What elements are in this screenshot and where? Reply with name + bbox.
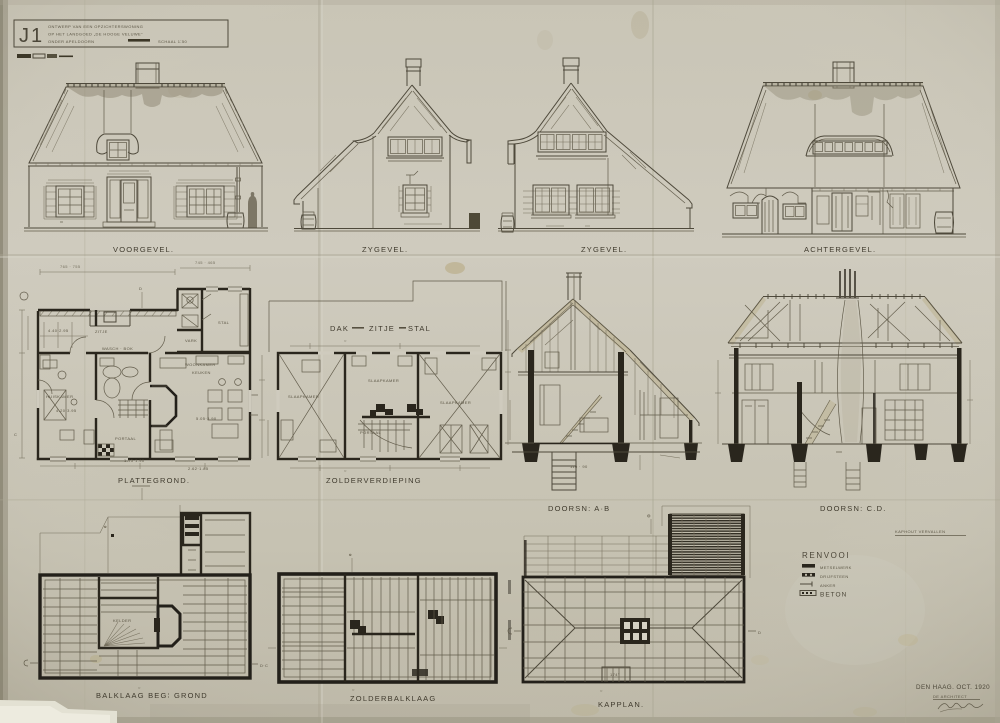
svg-text:○: ○ bbox=[138, 685, 141, 690]
svg-text:DRIJFSTEEN: DRIJFSTEEN bbox=[820, 574, 849, 579]
svg-text:DAK: DAK bbox=[330, 324, 349, 333]
svg-text:DE ARCHITECT: DE ARCHITECT bbox=[933, 694, 967, 699]
svg-text:WOONKAMER: WOONKAMER bbox=[185, 362, 216, 367]
svg-text:○: ○ bbox=[344, 338, 347, 343]
svg-text:2.62·1.85: 2.62·1.85 bbox=[188, 466, 209, 471]
svg-text:4.20·3.95: 4.20·3.95 bbox=[56, 408, 77, 413]
svg-text:ONDER APELDOORN: ONDER APELDOORN bbox=[48, 39, 94, 44]
svg-text:SLAAPKAMER: SLAAPKAMER bbox=[368, 378, 399, 383]
svg-text:OP HET LANDGOED „DE HOOGE VELU: OP HET LANDGOED „DE HOOGE VELUWE“ bbox=[48, 32, 143, 37]
svg-text:PORTAAL: PORTAAL bbox=[115, 436, 136, 441]
svg-text:ONTWERP VAN EEN OPZICHTERSWONI: ONTWERP VAN EEN OPZICHTERSWONING bbox=[48, 24, 143, 29]
svg-text:D: D bbox=[758, 630, 761, 635]
svg-text:DOORSN: C.D.: DOORSN: C.D. bbox=[820, 504, 887, 513]
svg-text:ZYGEVEL.: ZYGEVEL. bbox=[581, 245, 627, 254]
svg-text:1.95·1.90: 1.95·1.90 bbox=[124, 458, 145, 463]
svg-text:METSELWERK: METSELWERK bbox=[820, 565, 852, 570]
svg-text:STAL: STAL bbox=[218, 320, 230, 325]
svg-text:KAPPLAN.: KAPPLAN. bbox=[598, 700, 644, 709]
svg-text:ANKER: ANKER bbox=[820, 583, 836, 588]
svg-text:ZOLDERVERDIEPING: ZOLDERVERDIEPING bbox=[326, 476, 422, 485]
svg-text:BETON: BETON bbox=[820, 592, 847, 599]
svg-text:○: ○ bbox=[104, 524, 107, 529]
svg-text:STAL: STAL bbox=[408, 324, 431, 333]
svg-text:ZYGEVEL.: ZYGEVEL. bbox=[362, 245, 408, 254]
svg-text:4.40·2.95: 4.40·2.95 bbox=[48, 328, 69, 333]
svg-text:RENVOOI: RENVOOI bbox=[802, 551, 850, 560]
svg-text:○: ○ bbox=[352, 687, 355, 692]
svg-text:745 · 465: 745 · 465 bbox=[195, 260, 216, 265]
svg-text:PLATTEGROND.: PLATTEGROND. bbox=[118, 476, 190, 485]
svg-text:SCHAAL 1∶50: SCHAAL 1∶50 bbox=[158, 39, 187, 44]
svg-text:5.05·3.90: 5.05·3.90 bbox=[196, 416, 217, 421]
svg-text:SLAAPKAMER: SLAAPKAMER bbox=[288, 394, 319, 399]
svg-text:○: ○ bbox=[600, 688, 603, 693]
svg-text:VARK: VARK bbox=[185, 338, 197, 343]
svg-text:C: C bbox=[14, 432, 17, 437]
svg-text:110 · 90: 110 · 90 bbox=[570, 464, 588, 469]
svg-text:D: D bbox=[139, 286, 142, 291]
svg-text:DOORSN: A·B: DOORSN: A·B bbox=[548, 504, 610, 513]
svg-text:ZITJE: ZITJE bbox=[369, 324, 395, 333]
svg-text:HUISKAMER: HUISKAMER bbox=[46, 394, 73, 399]
svg-text:174°: 174° bbox=[610, 672, 620, 677]
svg-text:KAPHOUT VERVALLEN: KAPHOUT VERVALLEN bbox=[895, 529, 945, 534]
svg-text:◍: ◍ bbox=[647, 513, 651, 518]
svg-text:KELDER: KELDER bbox=[113, 618, 131, 623]
svg-text:ZOLDERBALKLAAG: ZOLDERBALKLAAG bbox=[350, 694, 436, 703]
svg-text:D·C: D·C bbox=[260, 663, 268, 668]
svg-text:ZITJE: ZITJE bbox=[95, 329, 108, 334]
svg-text:ACHTERGEVEL.: ACHTERGEVEL. bbox=[804, 245, 876, 254]
svg-text:765 · 755: 765 · 755 bbox=[60, 264, 81, 269]
svg-text:WASCH · BOK: WASCH · BOK bbox=[102, 346, 133, 351]
svg-text:DEN HAAG. OCT. 1920: DEN HAAG. OCT. 1920 bbox=[916, 684, 990, 691]
svg-text:BALKLAAG BEG∶ GROND: BALKLAAG BEG∶ GROND bbox=[96, 691, 208, 700]
svg-text:○: ○ bbox=[344, 468, 347, 473]
svg-text:○: ○ bbox=[349, 552, 352, 557]
svg-text:KEUKEN: KEUKEN bbox=[192, 370, 211, 375]
svg-text:J1: J1 bbox=[19, 25, 44, 47]
svg-text:PORTAAL: PORTAAL bbox=[360, 430, 381, 435]
svg-text:VOORGEVEL.: VOORGEVEL. bbox=[113, 245, 174, 254]
svg-text:SLAAPKAMER: SLAAPKAMER bbox=[440, 400, 471, 405]
